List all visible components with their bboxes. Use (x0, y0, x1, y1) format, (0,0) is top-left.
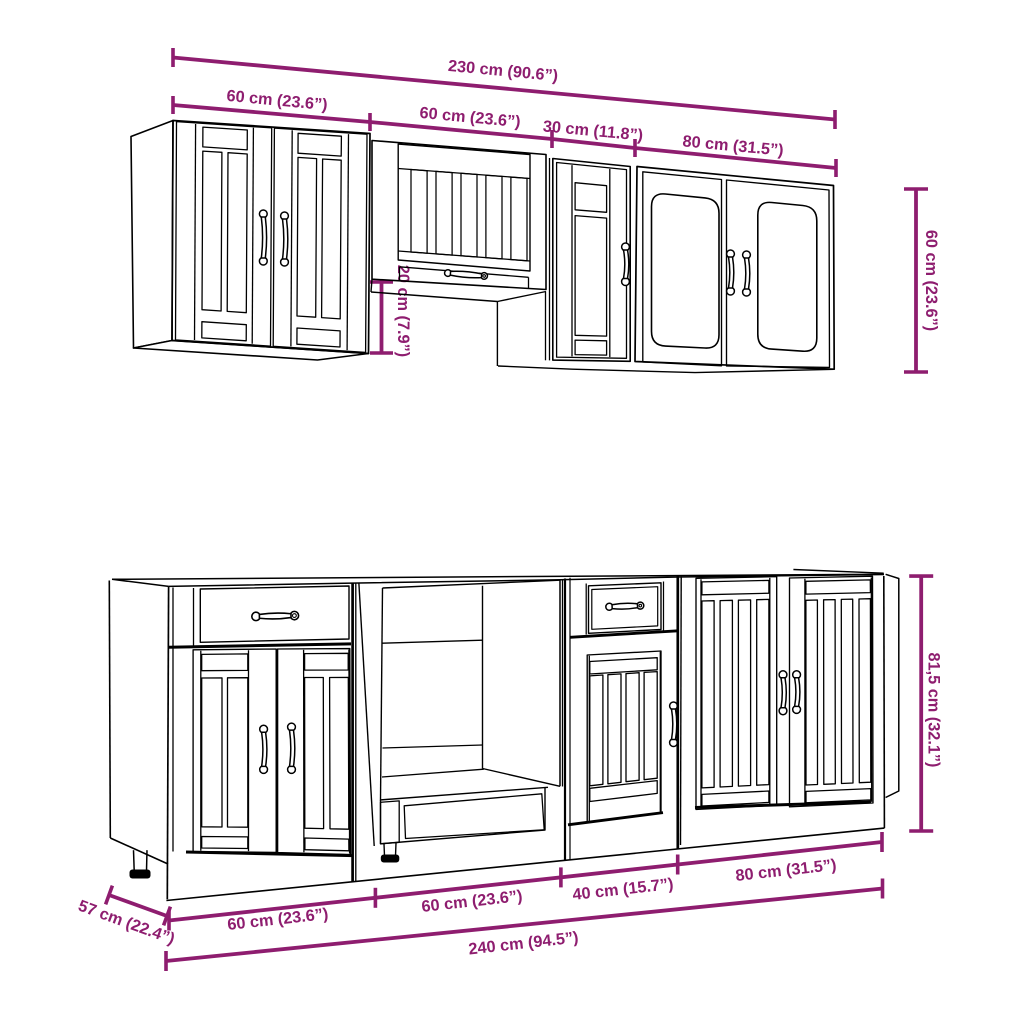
svg-text:81,5 cm (32.1”): 81,5 cm (32.1”) (925, 653, 943, 768)
svg-text:20 cm (7.9”): 20 cm (7.9”) (394, 265, 412, 357)
svg-text:60 cm (23.6”): 60 cm (23.6”) (922, 230, 940, 331)
